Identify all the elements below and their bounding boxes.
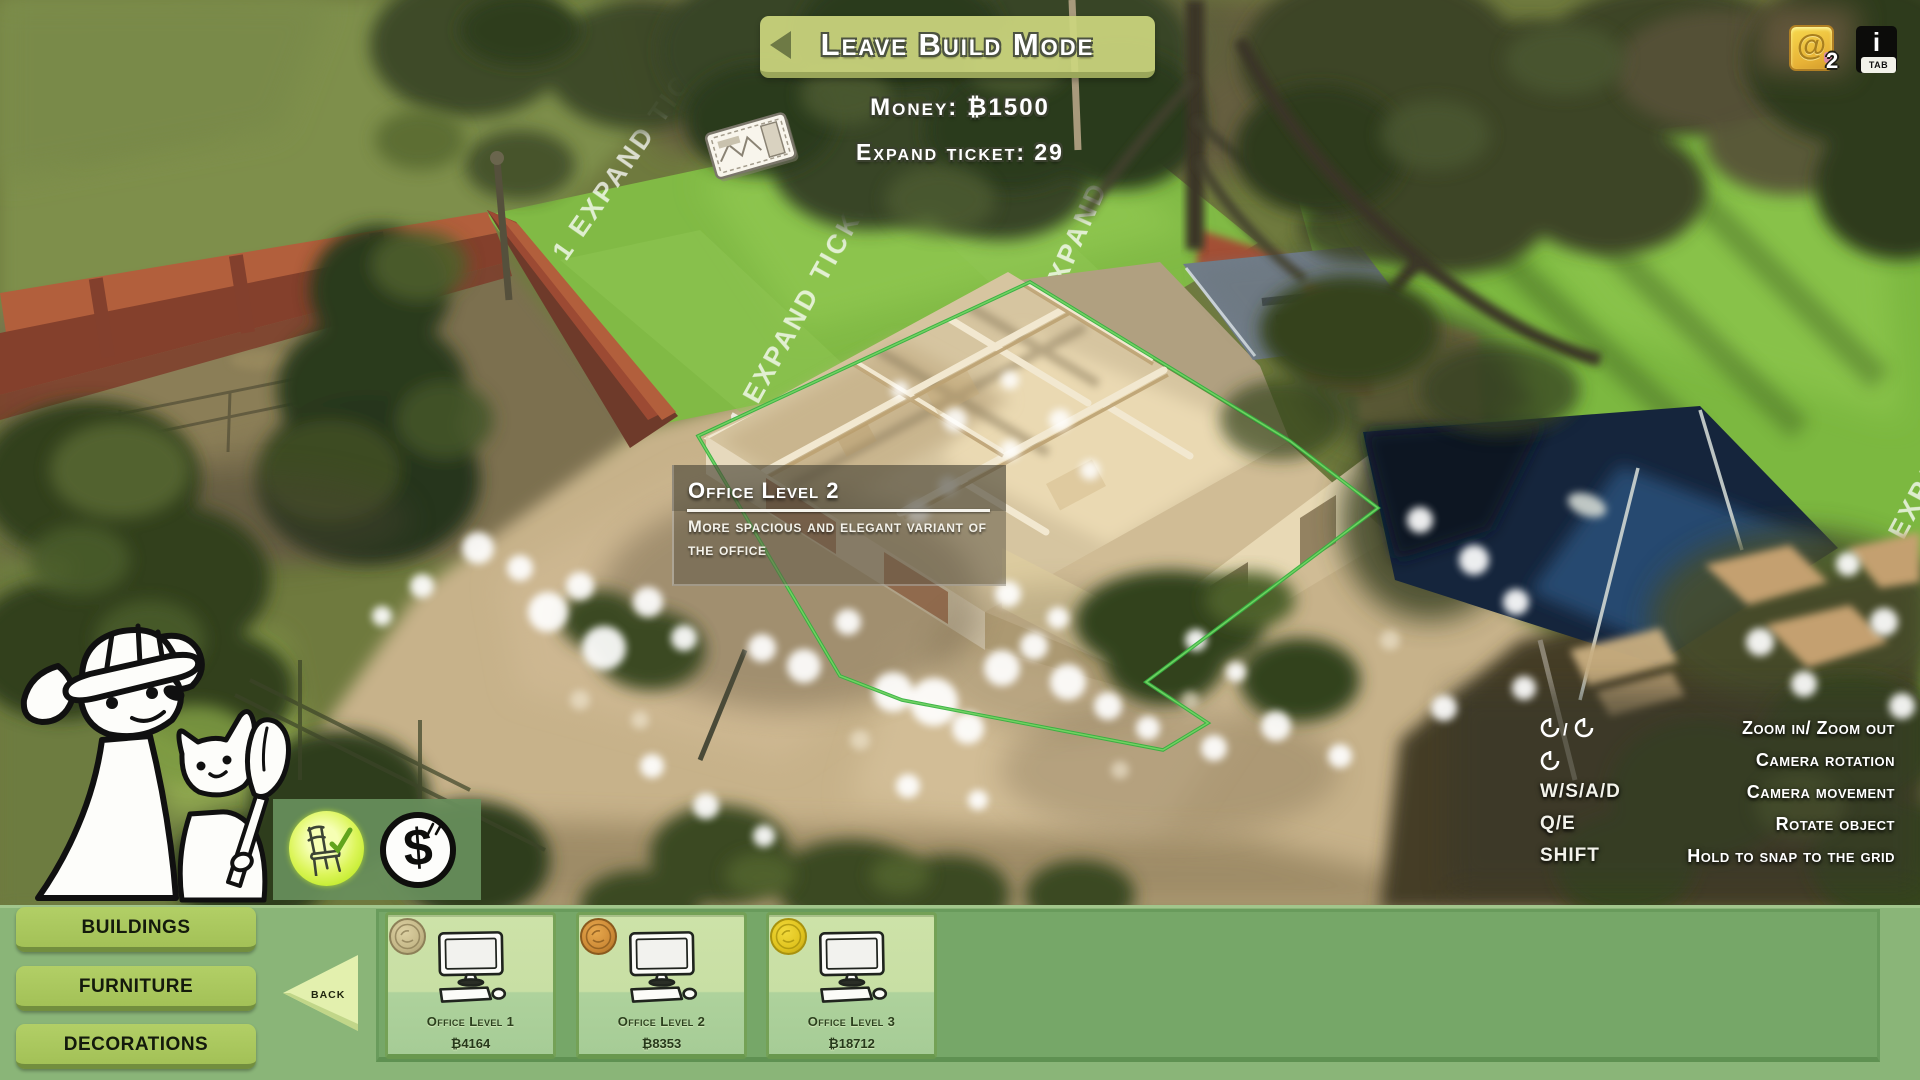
- svg-text:BACK: BACK: [311, 989, 345, 1001]
